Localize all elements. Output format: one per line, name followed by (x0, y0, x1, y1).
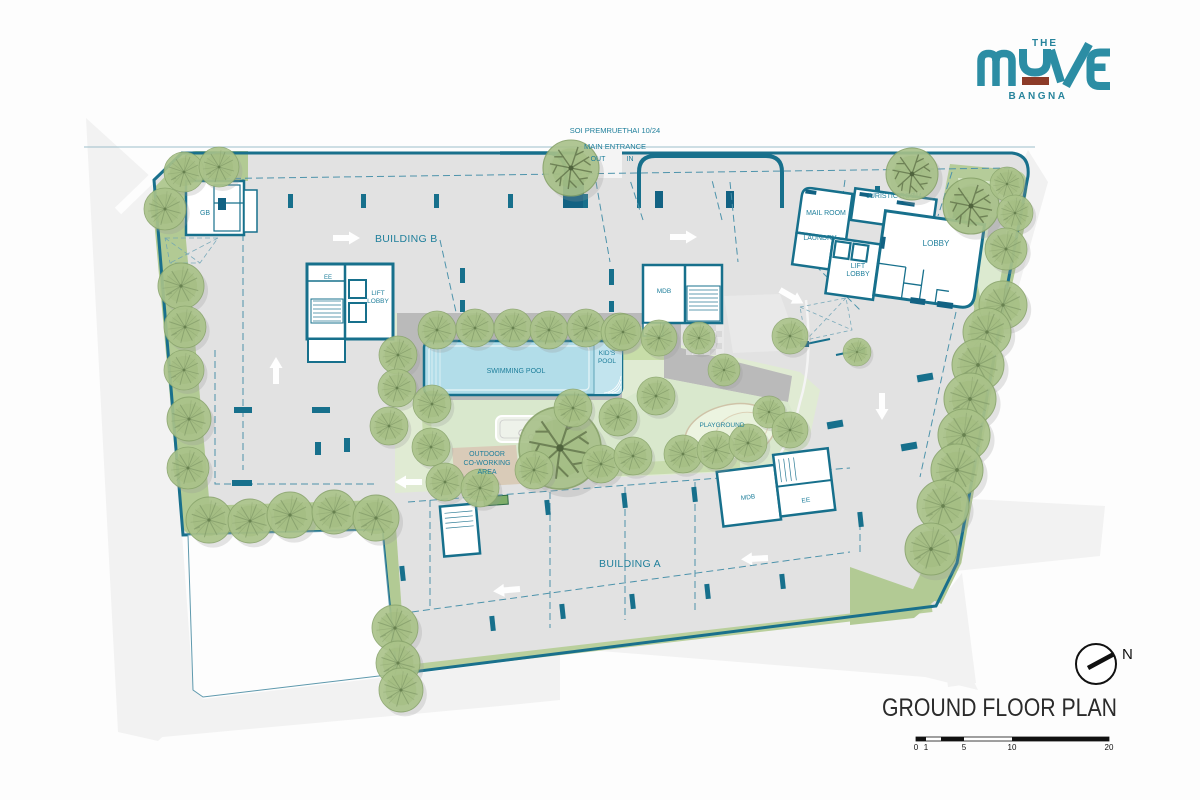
svg-text:EE: EE (801, 497, 811, 505)
svg-text:MDB: MDB (657, 288, 671, 295)
svg-text:OUTDOOR: OUTDOOR (469, 451, 505, 458)
svg-text:OUT: OUT (591, 156, 607, 163)
svg-text:LOBBY: LOBBY (367, 298, 389, 305)
svg-text:POOL: POOL (598, 358, 616, 365)
svg-text:GB: GB (200, 210, 210, 217)
svg-text:5: 5 (962, 743, 967, 752)
svg-text:PLAYGROUND: PLAYGROUND (699, 422, 744, 429)
svg-text:AREA: AREA (477, 469, 496, 476)
svg-text:20: 20 (1105, 743, 1114, 752)
svg-text:THE: THE (1032, 38, 1058, 49)
svg-text:10: 10 (1008, 743, 1017, 752)
svg-text:LAUNDRY: LAUNDRY (803, 235, 837, 242)
svg-text:MAIL ROOM: MAIL ROOM (806, 210, 846, 217)
svg-text:CO-WORKING: CO-WORKING (463, 460, 510, 467)
svg-text:1: 1 (924, 743, 929, 752)
svg-text:GROUND FLOOR PLAN: GROUND FLOOR PLAN (882, 694, 1117, 722)
svg-text:BUILDING B: BUILDING B (375, 233, 438, 245)
svg-text:LIFT: LIFT (851, 263, 866, 270)
svg-text:IN: IN (627, 156, 634, 163)
svg-text:LIFT: LIFT (371, 290, 384, 297)
svg-text:KID'S: KID'S (599, 350, 616, 357)
svg-text:N: N (1122, 646, 1133, 663)
svg-text:MAIN ENTRANCE: MAIN ENTRANCE (584, 142, 646, 151)
svg-text:BANGNA: BANGNA (1009, 91, 1068, 102)
svg-text:LOBBY: LOBBY (846, 271, 870, 278)
svg-text:EE: EE (324, 275, 332, 281)
svg-text:SOI PREMRUETHAI 10/24: SOI PREMRUETHAI 10/24 (570, 126, 660, 135)
svg-text:LOBBY: LOBBY (923, 239, 950, 248)
svg-text:BUILDING A: BUILDING A (599, 558, 661, 570)
svg-text:0: 0 (914, 743, 919, 752)
svg-text:SWIMMING POOL: SWIMMING POOL (487, 368, 546, 375)
